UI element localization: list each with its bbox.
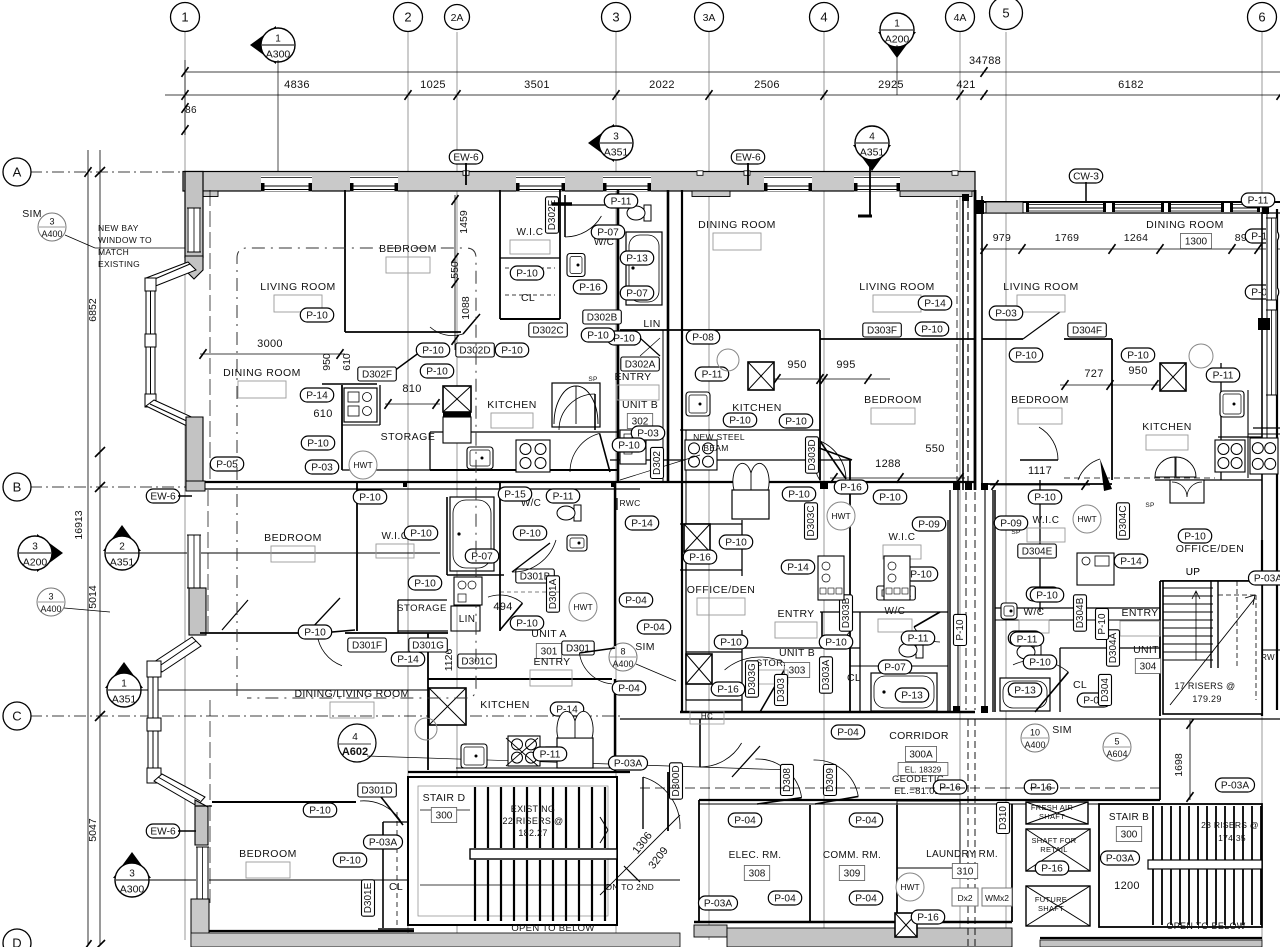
svg-text:3: 3 (129, 869, 135, 880)
svg-text:4: 4 (352, 732, 358, 743)
svg-text:P-14: P-14 (631, 518, 653, 529)
svg-text:550: 550 (925, 443, 944, 455)
svg-text:UNIT: UNIT (1133, 644, 1159, 656)
svg-text:STORAGE: STORAGE (397, 603, 447, 614)
svg-text:727: 727 (1084, 368, 1103, 380)
svg-text:P-03A: P-03A (1106, 853, 1135, 864)
svg-text:ENTRY: ENTRY (1122, 607, 1159, 619)
svg-text:P-15: P-15 (504, 489, 526, 500)
svg-text:182.27: 182.27 (518, 828, 547, 838)
svg-text:HWT: HWT (900, 882, 919, 892)
svg-text:5: 5 (1002, 6, 1009, 21)
svg-text:D302B: D302B (587, 313, 618, 324)
svg-text:8: 8 (620, 647, 625, 657)
svg-text:D302D: D302D (459, 346, 490, 357)
svg-text:P-10: P-10 (1184, 531, 1206, 542)
svg-text:CORRIDOR: CORRIDOR (889, 730, 949, 742)
svg-text:P-16: P-16 (1041, 863, 1063, 874)
svg-text:610: 610 (341, 353, 353, 371)
svg-text:P-14: P-14 (924, 298, 946, 309)
svg-text:D302F: D302F (362, 370, 392, 381)
svg-text:P-07: P-07 (626, 288, 648, 299)
svg-text:A604: A604 (1106, 749, 1127, 759)
svg-text:421: 421 (956, 79, 975, 91)
svg-text:BEDROOM: BEDROOM (264, 532, 322, 544)
svg-text:P-03: P-03 (311, 462, 333, 473)
svg-text:16913: 16913 (73, 510, 85, 539)
svg-text:EW-6: EW-6 (453, 152, 479, 163)
svg-text:D301D: D301D (361, 786, 392, 797)
svg-text:FUTURE: FUTURE (1035, 895, 1067, 904)
svg-text:P-04: P-04 (855, 815, 877, 826)
svg-text:D300D: D300D (671, 765, 682, 796)
svg-text:A200: A200 (885, 34, 910, 46)
svg-text:1288: 1288 (875, 458, 901, 470)
svg-text:ENTRY: ENTRY (778, 608, 815, 620)
svg-text:P-10: P-10 (304, 627, 326, 638)
svg-text:D303A: D303A (821, 659, 832, 690)
svg-text:2506: 2506 (754, 79, 780, 91)
svg-text:DINING ROOM: DINING ROOM (698, 219, 776, 231)
svg-text:A300: A300 (266, 49, 291, 61)
svg-text:P-11: P-11 (1248, 195, 1269, 206)
svg-text:174.35: 174.35 (1218, 833, 1246, 843)
svg-text:1300: 1300 (1185, 237, 1208, 248)
svg-text:P-10: P-10 (309, 805, 331, 816)
svg-text:P-10: P-10 (516, 268, 538, 279)
svg-text:EW-6: EW-6 (150, 826, 176, 837)
svg-text:303: 303 (789, 666, 806, 677)
svg-text:D301C: D301C (461, 657, 492, 668)
svg-text:HWT: HWT (353, 460, 372, 470)
svg-text:P-04: P-04 (734, 815, 756, 826)
svg-text:SP: SP (1145, 502, 1154, 509)
svg-text:2022: 2022 (649, 79, 675, 91)
svg-text:D301F: D301F (352, 641, 382, 652)
svg-text:2: 2 (404, 10, 411, 25)
svg-text:950: 950 (321, 353, 333, 371)
svg-text:W.I.C: W.I.C (517, 227, 544, 238)
svg-text:BEDROOM: BEDROOM (379, 243, 437, 255)
svg-text:2A: 2A (451, 12, 464, 24)
svg-text:3501: 3501 (524, 79, 550, 91)
svg-text:D301G: D301G (412, 641, 444, 652)
svg-text:P-10: P-10 (414, 578, 436, 589)
svg-text:6: 6 (1258, 10, 1265, 25)
svg-text:P-11: P-11 (553, 491, 574, 502)
svg-text:P-10: P-10 (720, 637, 742, 648)
svg-text:P-10: P-10 (825, 637, 847, 648)
svg-text:D304B: D304B (1075, 597, 1086, 628)
svg-text:1200: 1200 (1114, 880, 1140, 892)
svg-text:304: 304 (1140, 662, 1157, 673)
svg-text:P-05: P-05 (216, 459, 238, 470)
svg-text:P-04: P-04 (643, 622, 665, 633)
svg-text:P-07: P-07 (471, 551, 493, 562)
svg-text:OPEN TO BELOW: OPEN TO BELOW (1166, 921, 1245, 931)
svg-text:P-14: P-14 (787, 562, 809, 573)
svg-text:P-11: P-11 (1017, 634, 1038, 645)
svg-text:P-10: P-10 (426, 366, 448, 377)
svg-text:P-10: P-10 (339, 855, 361, 866)
svg-text:5: 5 (1114, 737, 1119, 747)
svg-text:P-16: P-16 (579, 282, 601, 293)
svg-text:WMx2: WMx2 (985, 893, 1009, 903)
svg-text:950: 950 (787, 359, 806, 371)
svg-text:P-10: P-10 (422, 345, 444, 356)
svg-text:EXISTING: EXISTING (98, 259, 140, 269)
svg-text:P-03A: P-03A (614, 758, 643, 769)
svg-text:BEAM: BEAM (703, 443, 728, 453)
svg-text:P-11: P-11 (540, 749, 561, 760)
svg-text:3: 3 (612, 10, 619, 25)
svg-text:EW-6: EW-6 (735, 152, 761, 163)
svg-text:A351: A351 (110, 557, 135, 569)
svg-text:MATCH: MATCH (98, 247, 129, 257)
svg-text:D304: D304 (1100, 678, 1111, 702)
svg-text:HWT: HWT (1077, 514, 1096, 524)
svg-text:3: 3 (32, 542, 38, 553)
svg-text:D301E: D301E (363, 882, 374, 913)
svg-text:COMM. RM.: COMM. RM. (823, 850, 881, 861)
svg-text:P-07: P-07 (597, 227, 619, 238)
svg-text:179.29: 179.29 (1192, 694, 1221, 704)
svg-text:STAIR B: STAIR B (1109, 812, 1149, 823)
svg-text:6182: 6182 (1118, 79, 1144, 91)
svg-text:D302C: D302C (532, 326, 563, 337)
svg-text:P-16: P-16 (689, 552, 711, 563)
svg-text:A400: A400 (41, 229, 62, 239)
svg-text:STOR.: STOR. (756, 658, 786, 669)
svg-text:CL: CL (389, 881, 403, 893)
svg-text:P-10: P-10 (725, 537, 747, 548)
svg-text:D303D: D303D (807, 439, 818, 470)
svg-text:P-10: P-10 (921, 324, 943, 335)
svg-text:KITCHEN: KITCHEN (480, 699, 530, 711)
svg-text:P-03A: P-03A (704, 898, 733, 909)
svg-text:P-11: P-11 (611, 196, 632, 207)
svg-text:300: 300 (1121, 830, 1138, 841)
svg-text:LAUNDRY RM.: LAUNDRY RM. (926, 849, 998, 860)
svg-text:1: 1 (894, 19, 900, 30)
svg-text:P-16: P-16 (840, 482, 862, 493)
svg-text:P-11: P-11 (908, 633, 929, 644)
svg-text:P-10: P-10 (910, 569, 932, 580)
svg-text:OFFICE/DEN: OFFICE/DEN (1176, 543, 1245, 555)
svg-text:3A: 3A (703, 12, 716, 24)
svg-text:P-03A: P-03A (1254, 573, 1280, 584)
svg-text:W/C: W/C (885, 606, 906, 617)
svg-text:5014: 5014 (87, 585, 99, 609)
svg-text:34788: 34788 (969, 55, 1001, 67)
svg-text:P-11: P-11 (702, 369, 723, 380)
svg-text:P-10: P-10 (307, 438, 329, 449)
svg-text:P-10: P-10 (519, 528, 541, 539)
svg-text:23 RISERS @: 23 RISERS @ (1201, 820, 1259, 830)
svg-text:D: D (12, 936, 21, 947)
svg-text:1459: 1459 (458, 210, 470, 234)
svg-text:D303B: D303B (841, 597, 852, 628)
svg-text:RETAIL: RETAIL (1040, 845, 1068, 854)
svg-text:A: A (13, 165, 22, 180)
svg-text:DINING ROOM: DINING ROOM (223, 367, 301, 379)
svg-text:UP: UP (1186, 567, 1201, 578)
svg-text:A400: A400 (1024, 740, 1045, 750)
svg-text:ENTRY: ENTRY (534, 656, 571, 668)
svg-text:P-04: P-04 (855, 893, 877, 904)
svg-text:P-10: P-10 (587, 330, 609, 341)
svg-text:950: 950 (1128, 365, 1147, 377)
svg-text:LIVING ROOM: LIVING ROOM (859, 281, 935, 293)
svg-text:P-10: P-10 (1015, 350, 1037, 361)
svg-text:NEW BAY: NEW BAY (98, 223, 139, 233)
svg-text:P-04: P-04 (618, 683, 640, 694)
svg-text:550: 550 (449, 261, 461, 279)
svg-text:22 RISERS @: 22 RISERS @ (503, 816, 564, 826)
svg-text:CW-3: CW-3 (1073, 171, 1099, 182)
svg-text:A400: A400 (612, 659, 633, 669)
svg-text:P-10: P-10 (1034, 492, 1056, 503)
svg-text:A351: A351 (860, 147, 885, 159)
svg-text:D303G: D303G (747, 663, 758, 695)
svg-text:RW: RW (1261, 653, 1275, 662)
svg-text:979: 979 (993, 232, 1011, 244)
svg-text:3: 3 (49, 217, 54, 227)
svg-text:1088: 1088 (460, 296, 472, 320)
svg-text:SHAFT: SHAFT (1038, 904, 1064, 913)
svg-text:D303C: D303C (806, 505, 817, 536)
svg-text:309: 309 (844, 869, 861, 880)
svg-text:995: 995 (836, 359, 855, 371)
svg-text:SIM: SIM (22, 208, 42, 220)
svg-text:P-10: P-10 (785, 416, 807, 427)
svg-text:HWT: HWT (573, 602, 592, 612)
svg-text:P-10: P-10 (1127, 350, 1149, 361)
svg-text:FRESH AIR: FRESH AIR (1031, 803, 1074, 812)
svg-text:A200: A200 (23, 557, 48, 569)
svg-text:P-11: P-11 (1213, 370, 1234, 381)
svg-text:ENTRY: ENTRY (615, 371, 652, 383)
svg-text:KITCHEN: KITCHEN (1142, 421, 1192, 433)
svg-text:P-10: P-10 (1036, 590, 1058, 601)
svg-text:P-10: P-10 (359, 492, 381, 503)
svg-text:P-09: P-09 (918, 519, 940, 530)
svg-text:310: 310 (957, 867, 974, 878)
svg-text:1769: 1769 (1055, 232, 1080, 244)
svg-text:D304A: D304A (1108, 632, 1119, 663)
svg-text:P-10: P-10 (516, 618, 538, 629)
svg-text:KITCHEN: KITCHEN (732, 402, 782, 414)
svg-text:1025: 1025 (420, 79, 446, 91)
svg-text:LIN: LIN (643, 318, 660, 330)
svg-text:SIM: SIM (635, 641, 655, 653)
svg-text:LIVING ROOM: LIVING ROOM (260, 281, 336, 293)
svg-text:W.I.C: W.I.C (1033, 515, 1060, 526)
svg-text:C: C (12, 709, 21, 724)
svg-text:BEDROOM: BEDROOM (239, 848, 297, 860)
svg-text:HC: HC (701, 712, 713, 721)
svg-text:A400: A400 (40, 604, 61, 614)
svg-text:P-14: P-14 (306, 390, 328, 401)
svg-text:10: 10 (1030, 728, 1040, 738)
svg-text:P-10: P-10 (501, 345, 523, 356)
svg-text:CL: CL (1073, 679, 1087, 691)
svg-text:BEDROOM: BEDROOM (864, 394, 922, 406)
svg-text:P-14: P-14 (397, 654, 419, 665)
svg-text:P-14: P-14 (1120, 556, 1142, 567)
svg-text:LIN: LIN (459, 614, 475, 625)
svg-text:KITCHEN: KITCHEN (487, 399, 537, 411)
svg-text:P-09: P-09 (1000, 518, 1022, 529)
svg-text:3: 3 (48, 592, 53, 602)
svg-text:W/C: W/C (1024, 607, 1045, 618)
svg-text:P-13: P-13 (1014, 685, 1036, 696)
svg-text:P-10: P-10 (613, 333, 635, 344)
svg-text:A602: A602 (342, 746, 368, 758)
svg-text:NEW STEEL: NEW STEEL (693, 432, 745, 442)
svg-text:P-16: P-16 (917, 912, 939, 923)
svg-text:P-04: P-04 (774, 893, 796, 904)
svg-text:1264: 1264 (1124, 232, 1149, 244)
svg-text:1698: 1698 (1173, 753, 1185, 777)
svg-text:P-10: P-10 (955, 619, 966, 641)
svg-text:P-03A: P-03A (1221, 780, 1250, 791)
svg-text:D303F: D303F (867, 326, 897, 337)
svg-text:P-10: P-10 (618, 440, 640, 451)
svg-text:W.I.C: W.I.C (889, 532, 916, 543)
svg-text:LIVING ROOM: LIVING ROOM (1003, 281, 1079, 293)
svg-text:494: 494 (493, 601, 512, 613)
svg-text:EW-6: EW-6 (150, 491, 176, 502)
svg-text:CL: CL (847, 672, 861, 684)
svg-text:P-10: P-10 (729, 415, 751, 426)
svg-text:1: 1 (121, 679, 127, 690)
svg-text:ELEC. RM.: ELEC. RM. (729, 850, 782, 861)
svg-text:UNIT B: UNIT B (622, 399, 658, 411)
svg-text:D304E: D304E (1022, 547, 1053, 558)
svg-text:P-04: P-04 (625, 595, 647, 606)
svg-text:P-16: P-16 (717, 684, 739, 695)
svg-text:P-03: P-03 (995, 308, 1017, 319)
svg-text:P-13: P-13 (626, 253, 648, 264)
svg-text:DINING ROOM: DINING ROOM (1146, 219, 1224, 231)
svg-text:P-10: P-10 (1097, 613, 1108, 635)
svg-text:5047: 5047 (87, 818, 99, 842)
svg-text:OFFICE/DEN: OFFICE/DEN (687, 584, 756, 596)
svg-text:SIM: SIM (1052, 724, 1072, 736)
svg-text:EXISTING: EXISTING (511, 804, 555, 814)
svg-text:610: 610 (313, 408, 332, 420)
svg-text:DN TO 2ND: DN TO 2ND (606, 882, 654, 892)
svg-text:D304F: D304F (1072, 326, 1102, 337)
svg-text:2: 2 (119, 542, 125, 553)
svg-text:300: 300 (436, 811, 453, 822)
svg-text:P-10: P-10 (306, 310, 328, 321)
svg-text:Dx2: Dx2 (957, 893, 972, 903)
svg-text:P-13: P-13 (901, 690, 923, 701)
svg-text:1: 1 (181, 10, 188, 25)
svg-text:D301A: D301A (548, 578, 559, 609)
svg-text:D310: D310 (998, 806, 1009, 830)
svg-text:SP: SP (588, 376, 597, 383)
svg-text:OPEN TO BELOW: OPEN TO BELOW (511, 923, 594, 934)
svg-text:3: 3 (613, 132, 619, 143)
svg-text:P-10: P-10 (1029, 657, 1051, 668)
svg-text:D302: D302 (652, 451, 663, 475)
svg-text:1: 1 (275, 34, 281, 45)
svg-text:P-07: P-07 (884, 662, 906, 673)
svg-text:4: 4 (820, 10, 827, 25)
svg-text:1117: 1117 (1028, 465, 1052, 477)
svg-text:P-10: P-10 (410, 528, 432, 539)
svg-text:D303: D303 (776, 678, 787, 702)
svg-text:D302A: D302A (625, 360, 656, 371)
svg-text:WINDOW TO: WINDOW TO (98, 235, 152, 245)
svg-text:BEDROOM: BEDROOM (1011, 394, 1069, 406)
svg-text:4A: 4A (954, 12, 967, 24)
svg-text:A351: A351 (112, 694, 137, 706)
svg-text:HWT: HWT (831, 511, 850, 521)
svg-text:4: 4 (869, 132, 875, 143)
svg-text:CL: CL (521, 292, 535, 304)
svg-text:P-10: P-10 (788, 489, 810, 500)
svg-text:17 RISERS @: 17 RISERS @ (1175, 681, 1236, 691)
svg-text:STORAGE: STORAGE (381, 431, 436, 443)
svg-text:P-04: P-04 (837, 727, 859, 738)
svg-text:4836: 4836 (284, 79, 310, 91)
svg-text:A300: A300 (120, 884, 145, 896)
svg-text:D301: D301 (566, 644, 590, 655)
svg-text:300A: 300A (909, 750, 933, 761)
svg-text:B: B (13, 480, 22, 495)
svg-text:STAIR D: STAIR D (423, 792, 466, 804)
svg-text:P-10: P-10 (879, 492, 901, 503)
svg-text:2925: 2925 (878, 79, 904, 91)
svg-text:D304C: D304C (1118, 505, 1129, 536)
svg-text:6852: 6852 (87, 298, 99, 322)
svg-text:A351: A351 (604, 147, 629, 159)
svg-text:810: 810 (402, 383, 421, 395)
svg-text:P-03A: P-03A (369, 837, 398, 848)
svg-text:P-08: P-08 (692, 332, 714, 343)
svg-text:SHAFT FOR: SHAFT FOR (1031, 836, 1076, 845)
svg-text:308: 308 (749, 869, 766, 880)
svg-text:RWC: RWC (619, 498, 640, 508)
svg-text:3000: 3000 (257, 338, 283, 350)
svg-text:SHAFT: SHAFT (1039, 812, 1065, 821)
